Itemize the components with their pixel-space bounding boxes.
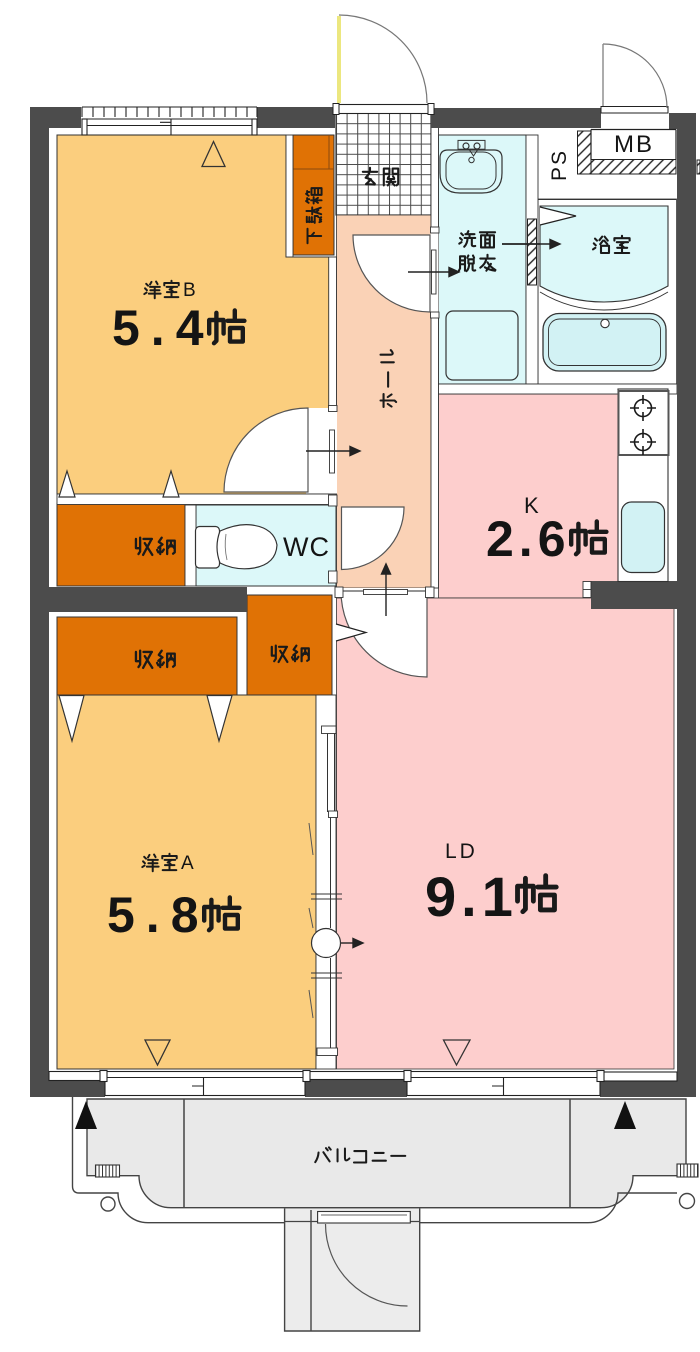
svg-text:MB: MB <box>614 131 654 158</box>
svg-text:LD: LD <box>445 840 478 863</box>
svg-text:2.6: 2.6 <box>486 511 571 567</box>
svg-text:9.1: 9.1 <box>425 865 518 928</box>
svg-text:PS: PS <box>548 149 571 181</box>
svg-text:WC: WC <box>283 532 330 562</box>
svg-text:A: A <box>181 853 194 874</box>
svg-text:5.4: 5.4 <box>112 300 215 356</box>
svg-text:B: B <box>183 280 196 301</box>
svg-text:5.8: 5.8 <box>107 887 210 943</box>
